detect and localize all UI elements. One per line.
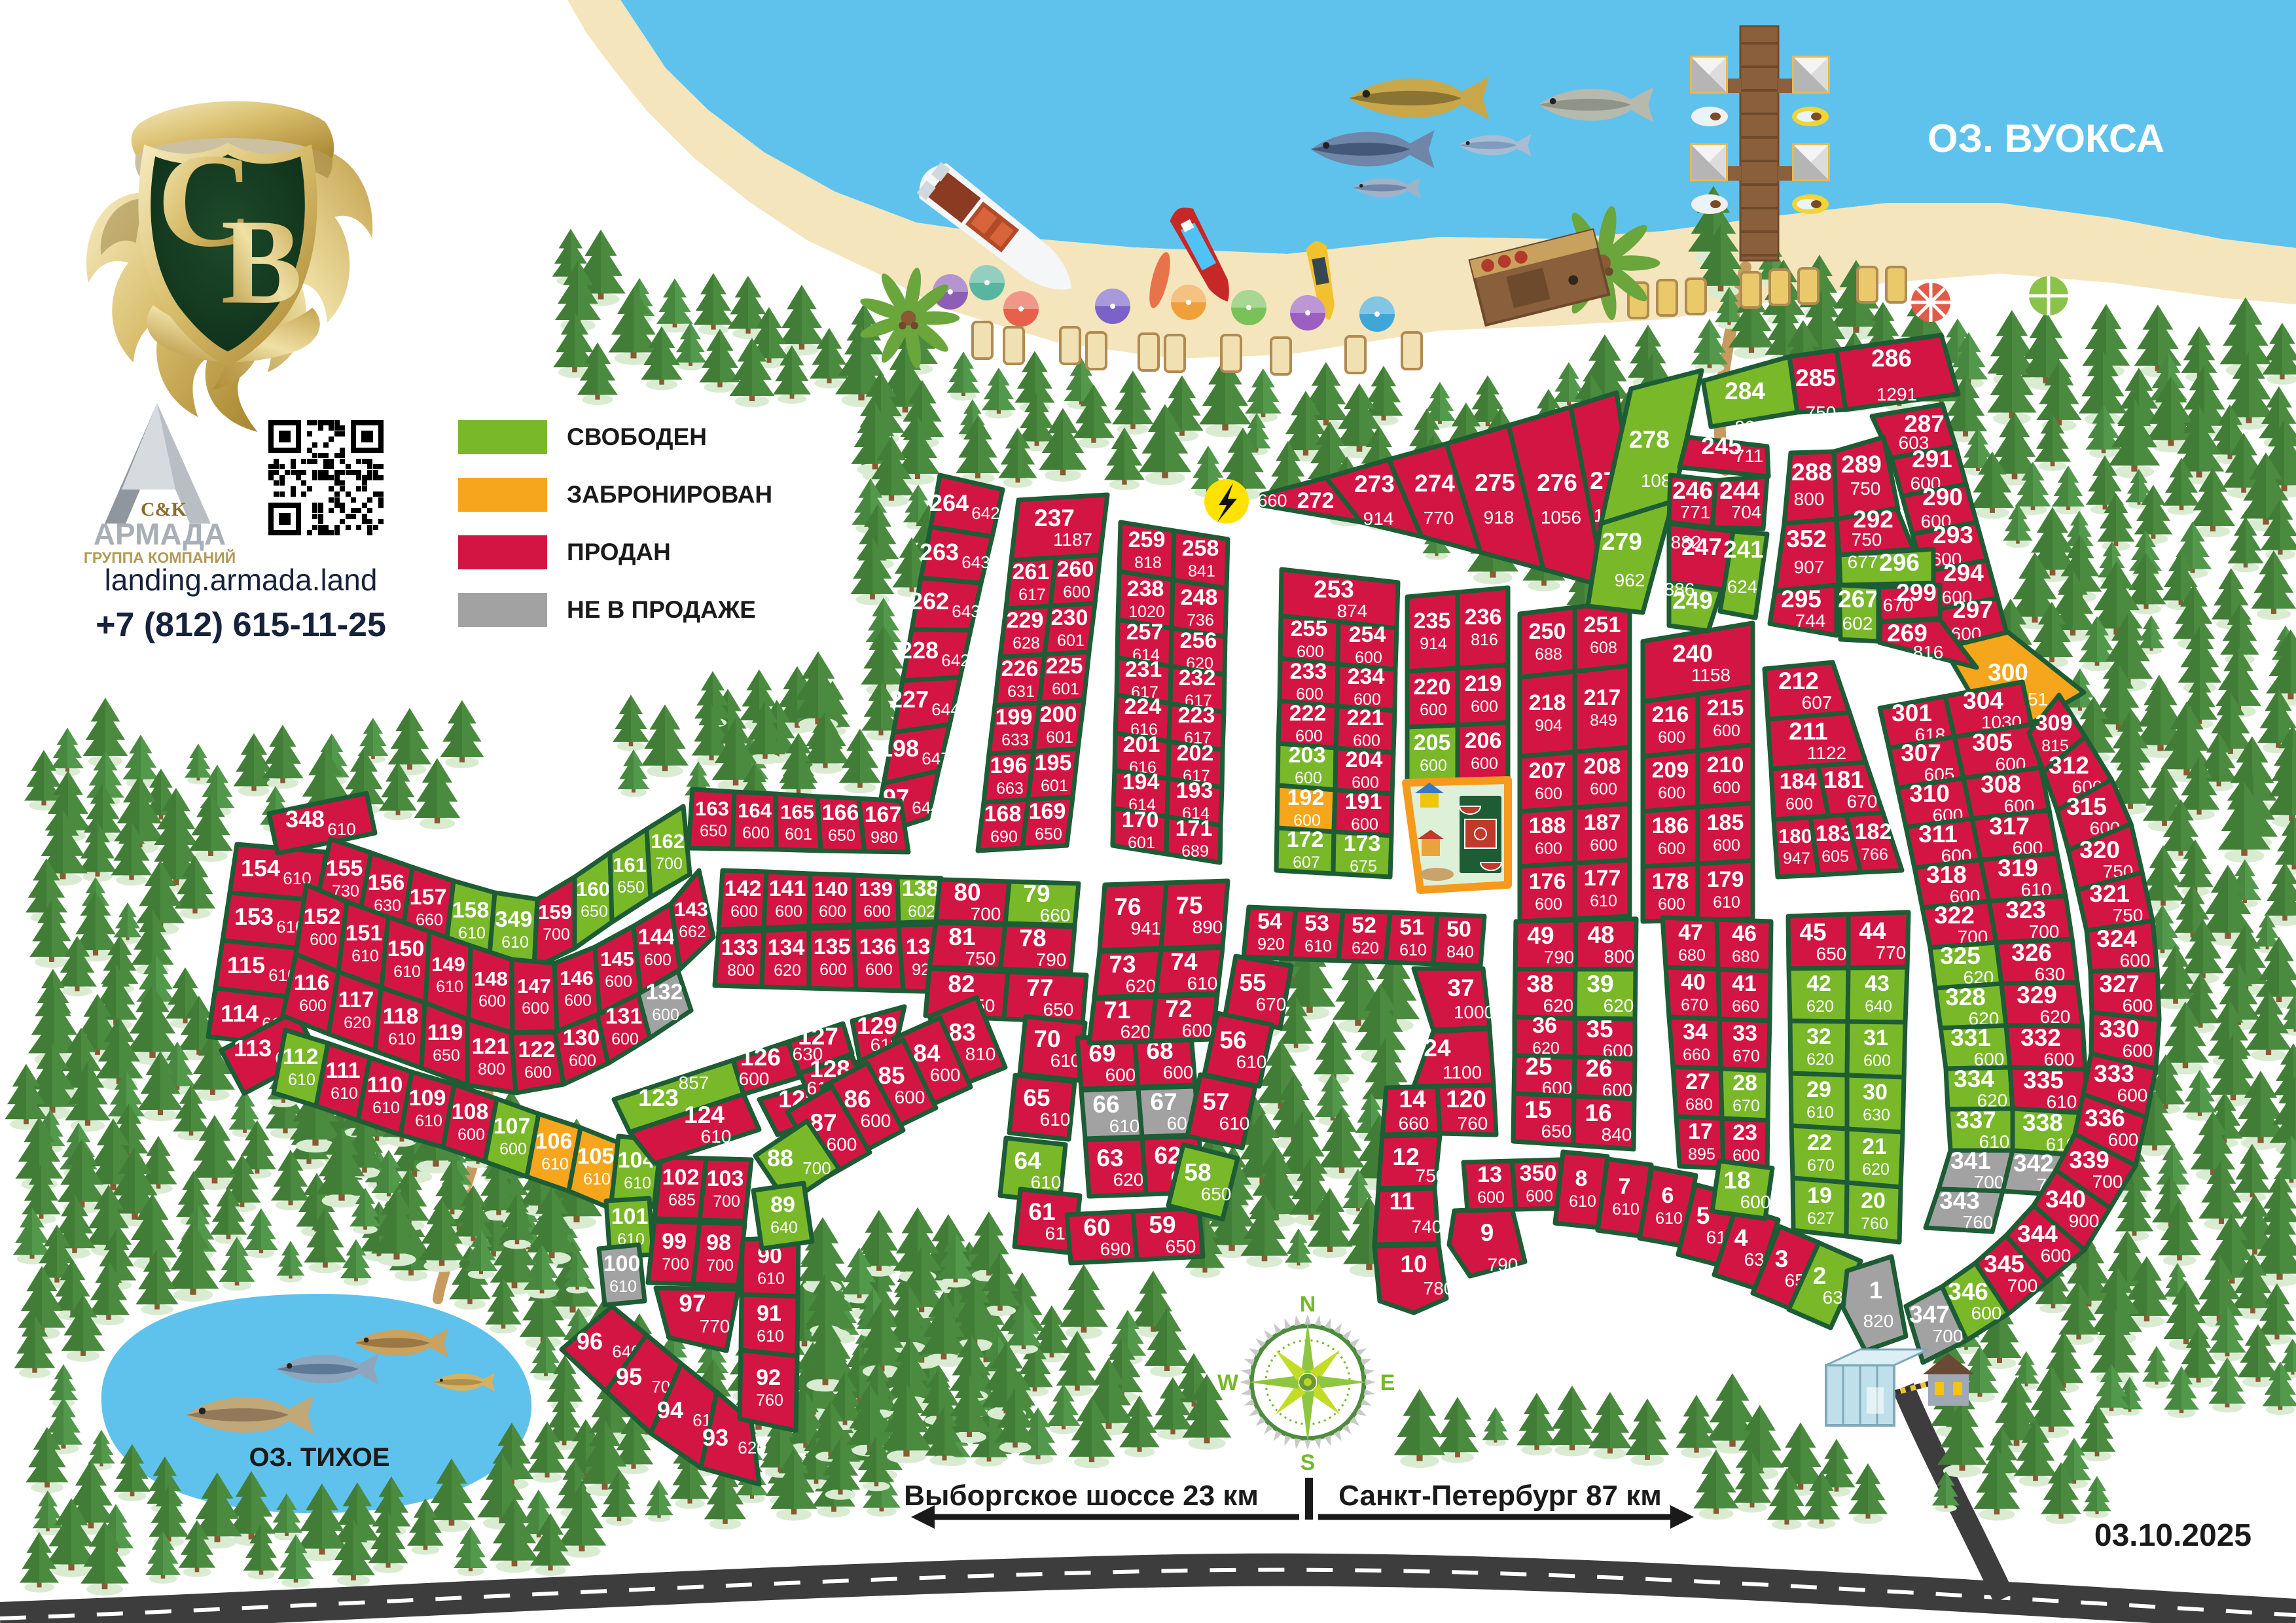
svg-text:600: 600 — [1785, 795, 1813, 813]
svg-text:600: 600 — [611, 1030, 639, 1048]
svg-text:236: 236 — [1465, 605, 1502, 630]
svg-text:91: 91 — [757, 1301, 781, 1326]
svg-text:600: 600 — [644, 951, 672, 969]
svg-text:750: 750 — [1806, 402, 1837, 423]
svg-text:141: 141 — [769, 876, 806, 901]
svg-text:601: 601 — [1052, 680, 1079, 698]
svg-text:217: 217 — [1584, 685, 1621, 710]
svg-text:108: 108 — [452, 1099, 489, 1124]
svg-text:962: 962 — [1615, 570, 1645, 590]
svg-text:11: 11 — [1389, 1188, 1414, 1215]
svg-text:НЕ В ПРОДАЖЕ: НЕ В ПРОДАЖЕ — [567, 596, 756, 623]
svg-text:1: 1 — [1869, 1277, 1883, 1304]
svg-text:244: 244 — [1719, 477, 1760, 504]
svg-text:120: 120 — [1446, 1086, 1486, 1113]
svg-text:600: 600 — [1420, 757, 1447, 775]
svg-text:75: 75 — [1175, 892, 1202, 919]
svg-text:610: 610 — [1713, 893, 1740, 912]
svg-text:267: 267 — [1838, 586, 1878, 613]
svg-text:207: 207 — [1529, 758, 1566, 783]
svg-text:262: 262 — [910, 588, 949, 615]
svg-text:321: 321 — [2089, 880, 2130, 907]
svg-text:760: 760 — [1458, 1113, 1488, 1133]
svg-text:644: 644 — [912, 798, 940, 817]
svg-text:339: 339 — [2069, 1147, 2109, 1173]
svg-text:57: 57 — [1202, 1088, 1229, 1115]
svg-text:209: 209 — [1652, 758, 1689, 783]
svg-text:329: 329 — [2017, 982, 2057, 1008]
svg-text:820: 820 — [1863, 1311, 1894, 1331]
svg-text:89: 89 — [770, 1192, 795, 1217]
svg-text:740: 740 — [1412, 1217, 1443, 1237]
svg-text:620: 620 — [1806, 1050, 1834, 1069]
svg-text:311: 311 — [1918, 821, 1958, 847]
svg-text:191: 191 — [1345, 789, 1382, 814]
svg-text:111: 111 — [326, 1058, 361, 1083]
svg-text:600: 600 — [1658, 784, 1685, 802]
svg-text:886: 886 — [1664, 579, 1695, 599]
svg-text:259: 259 — [1128, 527, 1166, 552]
svg-text:ЗАБРОНИРОВАН: ЗАБРОНИРОВАН — [567, 481, 772, 508]
svg-text:230: 230 — [1051, 605, 1088, 630]
svg-text:3: 3 — [1775, 1245, 1789, 1272]
svg-text:185: 185 — [1707, 810, 1744, 835]
svg-text:158: 158 — [452, 898, 490, 923]
svg-text:5: 5 — [1696, 1202, 1710, 1229]
svg-text:155: 155 — [326, 856, 363, 881]
svg-text:140: 140 — [814, 878, 848, 901]
svg-text:628: 628 — [1013, 634, 1040, 652]
svg-text:24: 24 — [1424, 1035, 1451, 1061]
svg-text:600: 600 — [1863, 1052, 1891, 1070]
svg-text:152: 152 — [304, 904, 341, 929]
svg-text:620: 620 — [774, 961, 801, 980]
svg-text:610: 610 — [1187, 973, 1218, 993]
svg-text:346: 346 — [1948, 1278, 1988, 1305]
svg-text:700: 700 — [2007, 1275, 2038, 1296]
svg-text:274: 274 — [1414, 470, 1455, 497]
svg-text:317: 317 — [1989, 813, 2030, 840]
svg-text:СВОБОДЕН: СВОБОДЕН — [567, 423, 707, 450]
svg-text:345: 345 — [1984, 1251, 2024, 1277]
svg-text:257: 257 — [1126, 620, 1164, 645]
svg-text:86: 86 — [844, 1086, 870, 1113]
svg-text:105: 105 — [577, 1144, 615, 1169]
svg-text:602: 602 — [1842, 613, 1873, 633]
svg-text:660: 660 — [1040, 905, 1071, 925]
svg-text:610: 610 — [436, 978, 463, 996]
svg-text:760: 760 — [1861, 1215, 1888, 1233]
svg-text:248: 248 — [1181, 585, 1218, 610]
svg-text:78: 78 — [1019, 925, 1046, 952]
svg-text:904: 904 — [1535, 717, 1562, 735]
svg-text:285: 285 — [1795, 365, 1836, 391]
svg-text:8: 8 — [1575, 1166, 1588, 1191]
svg-text:55: 55 — [1239, 969, 1266, 996]
svg-text:600: 600 — [2123, 995, 2153, 1016]
svg-text:204: 204 — [1346, 747, 1383, 772]
svg-text:600: 600 — [1471, 698, 1498, 716]
svg-text:98: 98 — [706, 1230, 731, 1255]
svg-text:600: 600 — [2123, 1041, 2153, 1061]
svg-text:340: 340 — [2045, 1186, 2086, 1213]
svg-text:343: 343 — [1939, 1187, 1980, 1214]
svg-text:700: 700 — [543, 925, 570, 944]
svg-text:610: 610 — [327, 819, 355, 839]
svg-text:650: 650 — [617, 878, 645, 897]
svg-text:914: 914 — [1420, 635, 1447, 653]
svg-text:810: 810 — [965, 1044, 996, 1064]
svg-text:700: 700 — [802, 1158, 831, 1178]
svg-text:610: 610 — [1236, 1052, 1267, 1072]
svg-text:112: 112 — [283, 1044, 319, 1069]
svg-text:700: 700 — [706, 1257, 734, 1275]
svg-text:145: 145 — [600, 948, 634, 971]
svg-text:102: 102 — [662, 1165, 700, 1190]
svg-text:308: 308 — [1981, 771, 2021, 798]
svg-text:600: 600 — [1471, 755, 1498, 773]
svg-text:13: 13 — [1477, 1162, 1502, 1187]
svg-text:600: 600 — [1713, 722, 1740, 740]
svg-text:157: 157 — [410, 885, 447, 910]
svg-text:10: 10 — [1400, 1251, 1427, 1277]
svg-text:600: 600 — [478, 992, 506, 1010]
svg-text:114: 114 — [221, 1000, 259, 1027]
svg-text:600: 600 — [524, 1063, 552, 1082]
svg-text:166: 166 — [822, 800, 859, 825]
svg-text:895: 895 — [1688, 1145, 1715, 1164]
svg-text:224: 224 — [1124, 694, 1162, 719]
svg-text:45: 45 — [1799, 919, 1826, 946]
svg-text:6: 6 — [1662, 1183, 1674, 1208]
svg-text:W: W — [1217, 1370, 1239, 1395]
svg-text:52: 52 — [1352, 913, 1376, 938]
svg-text:196: 196 — [990, 753, 1028, 778]
svg-text:331: 331 — [1950, 1024, 1991, 1051]
svg-text:116: 116 — [294, 971, 330, 995]
svg-text:208: 208 — [1584, 754, 1621, 779]
svg-text:201: 201 — [1123, 732, 1160, 757]
svg-text:642: 642 — [941, 651, 969, 670]
svg-text:297: 297 — [1952, 596, 1993, 623]
svg-text:600: 600 — [863, 902, 891, 921]
svg-text:600: 600 — [2120, 950, 2151, 971]
svg-text:601: 601 — [1128, 834, 1155, 852]
svg-text:101: 101 — [611, 1204, 649, 1229]
svg-text:600: 600 — [775, 902, 802, 921]
svg-text:750: 750 — [965, 948, 996, 969]
svg-text:601: 601 — [1041, 777, 1068, 795]
svg-text:110: 110 — [367, 1073, 403, 1097]
svg-text:219: 219 — [1465, 671, 1502, 696]
svg-text:94: 94 — [657, 1397, 683, 1423]
svg-text:256: 256 — [1180, 628, 1217, 653]
svg-text:70: 70 — [1033, 1026, 1060, 1052]
svg-text:B: B — [221, 194, 302, 329]
svg-text:293: 293 — [1933, 522, 1973, 548]
svg-text:171: 171 — [1175, 816, 1213, 841]
svg-text:610: 610 — [1040, 1109, 1071, 1130]
svg-text:255: 255 — [1291, 616, 1328, 641]
svg-text:310: 310 — [1909, 780, 1950, 807]
svg-text:159: 159 — [538, 901, 572, 923]
svg-text:650: 650 — [1166, 1236, 1196, 1257]
svg-text:АРМАДА: АРМАДА — [94, 517, 226, 551]
svg-text:304: 304 — [1963, 687, 2003, 714]
svg-text:226: 226 — [1001, 656, 1039, 681]
svg-text:231: 231 — [1125, 657, 1162, 682]
svg-text:194: 194 — [1122, 770, 1160, 794]
svg-text:312: 312 — [2049, 752, 2089, 779]
svg-text:643: 643 — [961, 552, 990, 572]
svg-text:21: 21 — [1862, 1134, 1887, 1159]
svg-text:1056: 1056 — [1541, 507, 1581, 527]
svg-text:610: 610 — [1806, 1103, 1834, 1122]
svg-text:620: 620 — [738, 1438, 766, 1457]
svg-text:642: 642 — [971, 503, 999, 523]
svg-text:700: 700 — [713, 1192, 740, 1211]
svg-text:610: 610 — [1399, 941, 1427, 959]
svg-text:770: 770 — [700, 1316, 730, 1336]
svg-text:347: 347 — [1909, 1301, 1950, 1328]
svg-text:273: 273 — [1354, 471, 1395, 497]
svg-text:58: 58 — [1184, 1159, 1211, 1186]
svg-text:211: 211 — [1789, 718, 1828, 745]
svg-text:240: 240 — [1672, 640, 1713, 667]
svg-text:88: 88 — [767, 1145, 793, 1171]
svg-text:600: 600 — [730, 902, 758, 921]
svg-text:27: 27 — [1685, 1069, 1710, 1094]
svg-text:700: 700 — [662, 1255, 689, 1274]
svg-text:610: 610 — [624, 1174, 651, 1192]
svg-text:650: 650 — [1035, 825, 1062, 844]
svg-text:272: 272 — [1297, 488, 1335, 513]
svg-text:309: 309 — [2036, 711, 2073, 736]
svg-text:71: 71 — [1103, 997, 1130, 1024]
svg-text:328: 328 — [1945, 984, 1986, 1010]
svg-text:610: 610 — [288, 1071, 315, 1089]
svg-text:600: 600 — [819, 961, 847, 979]
svg-text:600: 600 — [1535, 895, 1562, 914]
svg-text:7: 7 — [1619, 1174, 1631, 1199]
svg-text:51: 51 — [1399, 915, 1424, 940]
svg-text:170: 170 — [1122, 808, 1159, 832]
svg-text:149: 149 — [431, 953, 465, 976]
svg-text:Санкт-Петербург 87 км: Санкт-Петербург 87 км — [1338, 1480, 1662, 1512]
svg-text:2: 2 — [1813, 1262, 1827, 1289]
svg-text:290: 290 — [1922, 484, 1963, 510]
svg-text:40: 40 — [1681, 970, 1706, 995]
svg-text:600: 600 — [2117, 1085, 2148, 1105]
svg-text:610: 610 — [351, 947, 379, 965]
svg-text:941: 941 — [1131, 918, 1162, 938]
svg-text:228: 228 — [899, 637, 939, 664]
svg-text:610: 610 — [501, 933, 529, 952]
svg-text:124: 124 — [684, 1101, 725, 1128]
svg-text:169: 169 — [1029, 799, 1066, 824]
svg-text:163: 163 — [695, 797, 729, 820]
svg-text:918: 918 — [1484, 507, 1515, 527]
svg-text:74: 74 — [1170, 948, 1198, 975]
svg-text:N: N — [1300, 1292, 1316, 1317]
svg-text:890: 890 — [1193, 917, 1223, 937]
svg-text:1291: 1291 — [1876, 384, 1917, 404]
svg-text:874: 874 — [1337, 601, 1368, 621]
svg-text:610: 610 — [458, 924, 486, 942]
svg-text:35: 35 — [1586, 1016, 1613, 1043]
svg-text:260: 260 — [1057, 557, 1094, 582]
svg-text:610: 610 — [388, 1030, 416, 1048]
svg-text:143: 143 — [674, 898, 708, 921]
svg-text:286: 286 — [1871, 345, 1912, 372]
svg-text:ОЗ. ТИХОЕ: ОЗ. ТИХОЕ — [249, 1443, 389, 1472]
svg-text:77: 77 — [1026, 974, 1053, 1001]
svg-text:132: 132 — [646, 980, 683, 1005]
svg-text:600: 600 — [739, 1069, 770, 1089]
svg-text:600: 600 — [1526, 1187, 1553, 1205]
svg-text:675: 675 — [1350, 857, 1377, 876]
svg-text:119: 119 — [427, 1020, 463, 1045]
svg-text:662: 662 — [679, 923, 706, 941]
svg-text:205: 205 — [1414, 730, 1451, 755]
svg-text:235: 235 — [1414, 609, 1451, 633]
svg-text:670: 670 — [1847, 791, 1878, 811]
svg-text:ОЗ. ВУОКСА: ОЗ. ВУОКСА — [1928, 116, 2164, 160]
svg-text:72: 72 — [1165, 995, 1192, 1022]
svg-text:176: 176 — [1529, 869, 1566, 894]
svg-text:66: 66 — [1092, 1091, 1119, 1118]
svg-text:920: 920 — [1257, 935, 1285, 954]
svg-text:258: 258 — [1182, 536, 1219, 561]
svg-text:341: 341 — [1950, 1147, 1991, 1174]
svg-text:187: 187 — [1584, 810, 1621, 835]
svg-text:109: 109 — [409, 1086, 446, 1111]
svg-text:650: 650 — [581, 902, 608, 921]
svg-text:165: 165 — [780, 800, 814, 823]
svg-text:907: 907 — [1794, 557, 1825, 577]
svg-text:980: 980 — [870, 829, 898, 847]
svg-text:291: 291 — [1912, 446, 1952, 473]
svg-text:700: 700 — [971, 904, 1001, 924]
svg-text:31: 31 — [1863, 1026, 1888, 1050]
svg-text:633: 633 — [1001, 731, 1029, 749]
svg-text:600: 600 — [522, 999, 549, 1018]
svg-text:82: 82 — [948, 971, 975, 997]
svg-text:144: 144 — [638, 925, 675, 950]
svg-text:241: 241 — [1723, 536, 1764, 563]
svg-text:620: 620 — [1862, 1160, 1890, 1179]
svg-text:336: 336 — [2085, 1105, 2125, 1132]
svg-text:238: 238 — [1127, 577, 1164, 601]
svg-text:677: 677 — [1848, 552, 1878, 572]
svg-text:620: 620 — [1604, 995, 1634, 1016]
svg-text:1020: 1020 — [1128, 603, 1165, 621]
svg-text:600: 600 — [605, 972, 632, 991]
svg-text:750: 750 — [1850, 478, 1881, 499]
svg-text:199: 199 — [996, 705, 1033, 730]
svg-text:150: 150 — [387, 936, 425, 961]
svg-text:744: 744 — [1795, 611, 1826, 631]
svg-text:167: 167 — [865, 802, 902, 827]
svg-text:4: 4 — [1734, 1224, 1748, 1251]
svg-text:198: 198 — [880, 735, 919, 762]
svg-text:54: 54 — [1257, 909, 1282, 934]
svg-text:38: 38 — [1526, 971, 1553, 997]
svg-text:610: 610 — [372, 1099, 400, 1117]
svg-text:261: 261 — [1013, 560, 1050, 584]
svg-text:914: 914 — [1363, 508, 1394, 529]
svg-text:620: 620 — [1352, 939, 1379, 957]
svg-text:126: 126 — [740, 1044, 781, 1071]
svg-text:600: 600 — [742, 824, 770, 842]
svg-text:34: 34 — [1683, 1020, 1708, 1044]
svg-text:284: 284 — [1725, 378, 1765, 404]
svg-text:327: 327 — [2099, 971, 2140, 997]
svg-text:1100: 1100 — [1443, 1062, 1482, 1082]
svg-text:59: 59 — [1149, 1211, 1175, 1238]
svg-text:334: 334 — [1954, 1065, 1994, 1092]
svg-text:168: 168 — [984, 802, 1022, 827]
svg-text:644: 644 — [931, 700, 960, 719]
svg-text:610: 610 — [393, 963, 421, 981]
svg-text:690: 690 — [1100, 1239, 1131, 1259]
svg-text:771: 771 — [1680, 502, 1711, 522]
svg-text:279: 279 — [1602, 528, 1642, 555]
svg-text:711: 711 — [1734, 446, 1764, 466]
svg-text:760: 760 — [756, 1391, 783, 1410]
svg-text:670: 670 — [1256, 994, 1287, 1014]
svg-text:624: 624 — [1727, 577, 1758, 597]
svg-text:600: 600 — [930, 1065, 961, 1085]
svg-text:640: 640 — [1865, 997, 1892, 1016]
svg-text:660: 660 — [1732, 997, 1759, 1016]
svg-text:600: 600 — [865, 961, 893, 979]
svg-text:600: 600 — [1105, 1065, 1136, 1085]
svg-text:301: 301 — [1892, 700, 1932, 726]
svg-text:276: 276 — [1537, 469, 1577, 496]
svg-text:39: 39 — [1587, 971, 1613, 997]
svg-text:216: 216 — [1652, 702, 1689, 727]
svg-text:600: 600 — [1658, 728, 1685, 747]
svg-text:22: 22 — [1807, 1130, 1832, 1155]
svg-text:620: 620 — [1121, 1022, 1151, 1042]
svg-text:800: 800 — [1604, 946, 1635, 967]
svg-text:325: 325 — [1940, 942, 1981, 969]
svg-text:670: 670 — [1732, 1097, 1760, 1115]
svg-text:690: 690 — [990, 828, 1018, 846]
svg-text:92: 92 — [756, 1365, 781, 1390]
svg-text:650: 650 — [828, 827, 855, 845]
svg-text:17: 17 — [1688, 1119, 1713, 1144]
svg-text:660: 660 — [1399, 1113, 1429, 1133]
svg-text:118: 118 — [383, 1004, 419, 1029]
svg-text:180: 180 — [1778, 825, 1812, 847]
svg-text:680: 680 — [1678, 946, 1706, 965]
svg-text:220: 220 — [1414, 675, 1451, 700]
svg-text:212: 212 — [1778, 668, 1819, 694]
svg-text:65: 65 — [1023, 1084, 1050, 1111]
svg-text:106: 106 — [535, 1129, 573, 1154]
svg-text:607: 607 — [1293, 853, 1320, 872]
svg-text:173: 173 — [1344, 831, 1381, 856]
svg-text:161: 161 — [613, 853, 647, 876]
svg-text:344: 344 — [2017, 1221, 2058, 1247]
svg-text:99: 99 — [662, 1229, 687, 1254]
svg-text:600: 600 — [1740, 1192, 1771, 1212]
svg-text:154: 154 — [241, 855, 280, 882]
svg-text:630: 630 — [1863, 1106, 1890, 1124]
svg-text:195: 195 — [1035, 751, 1072, 776]
